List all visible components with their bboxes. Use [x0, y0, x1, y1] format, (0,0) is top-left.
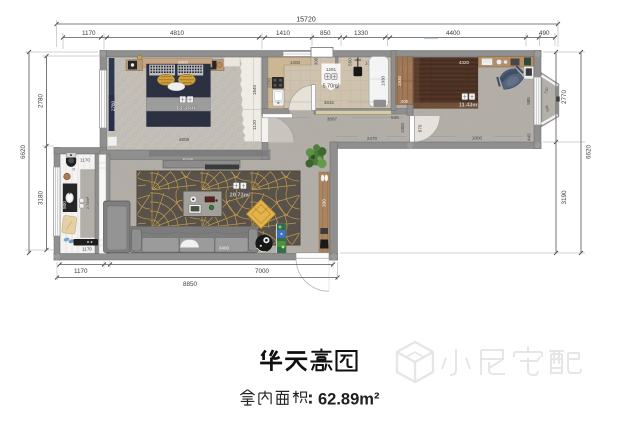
svg-text:2470: 2470 [367, 136, 378, 141]
svg-text:330: 330 [321, 199, 326, 207]
svg-text:3832: 3832 [324, 100, 335, 105]
svg-text:1170: 1170 [74, 268, 88, 275]
svg-text:2780: 2780 [111, 100, 116, 111]
svg-text:62.89m²: 62.89m² [318, 391, 380, 409]
svg-text:2030: 2030 [266, 77, 271, 88]
svg-text:1640: 1640 [252, 84, 257, 95]
svg-text:1170: 1170 [82, 30, 96, 37]
svg-text:490: 490 [539, 30, 550, 37]
svg-text:3400: 3400 [219, 246, 230, 251]
svg-text:1410: 1410 [276, 30, 291, 37]
svg-text:4320: 4320 [459, 60, 470, 65]
svg-text:4808: 4808 [179, 137, 190, 142]
svg-text:1930: 1930 [397, 75, 402, 86]
svg-text:1170: 1170 [82, 247, 92, 252]
svg-text:1800: 1800 [472, 136, 483, 141]
svg-text:15720: 15720 [296, 17, 316, 24]
svg-text:445: 445 [527, 133, 532, 141]
svg-text:985: 985 [526, 97, 531, 105]
svg-text:1120: 1120 [252, 120, 257, 130]
svg-text:1330: 1330 [354, 30, 369, 37]
svg-text:4810: 4810 [170, 30, 185, 37]
svg-text:1930: 1930 [381, 75, 386, 86]
svg-text:550: 550 [347, 58, 352, 66]
svg-text:3897: 3897 [327, 117, 338, 122]
svg-text:11.43m²: 11.43m² [459, 102, 480, 109]
svg-text:545: 545 [391, 115, 399, 120]
svg-text:1050: 1050 [400, 122, 405, 133]
svg-text:4400: 4400 [446, 30, 461, 37]
svg-text:2770: 2770 [561, 90, 568, 105]
svg-text:5.70m²: 5.70m² [323, 84, 340, 90]
svg-text:6620: 6620 [586, 145, 593, 160]
svg-text:20.73m²: 20.73m² [230, 192, 251, 199]
svg-text:7000: 7000 [255, 268, 270, 275]
svg-text:3180: 3180 [38, 191, 45, 206]
svg-text:2780: 2780 [38, 94, 45, 109]
svg-text:1400: 1400 [290, 60, 301, 65]
svg-text:13.37m²: 13.37m² [176, 105, 197, 112]
svg-text:850: 850 [320, 30, 331, 37]
svg-text:395: 395 [314, 57, 319, 65]
svg-text:2.74m²: 2.74m² [85, 196, 90, 209]
svg-text:1281: 1281 [326, 67, 337, 72]
svg-text:800: 800 [62, 201, 67, 209]
svg-text:870: 870 [418, 124, 423, 132]
svg-text:1170: 1170 [80, 158, 90, 163]
svg-text:400: 400 [401, 99, 409, 104]
svg-text:8850: 8850 [183, 281, 198, 288]
svg-text:6620: 6620 [20, 145, 27, 160]
svg-text:3190: 3190 [561, 190, 568, 205]
